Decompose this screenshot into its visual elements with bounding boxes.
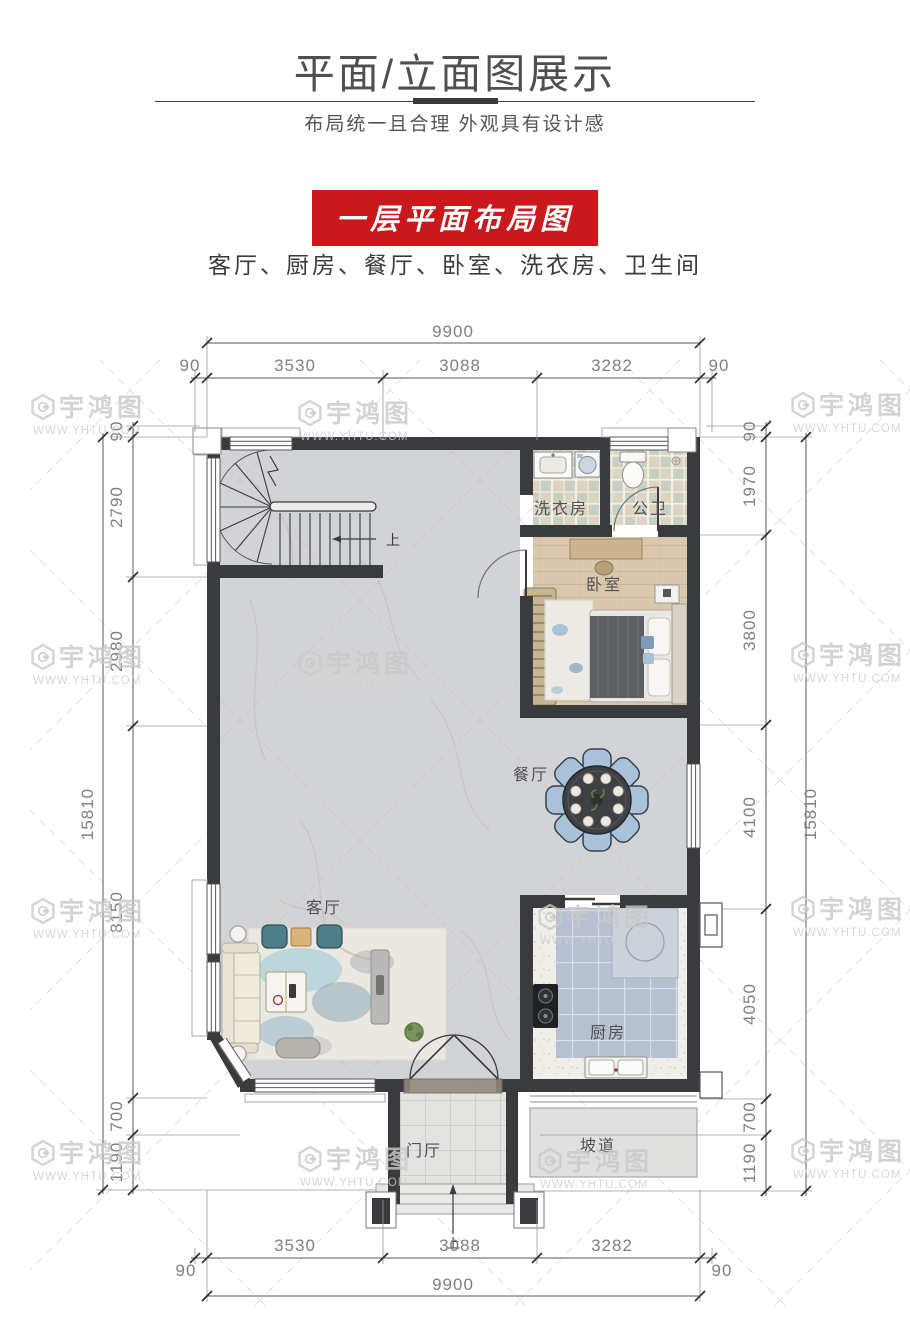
watermark: 宇鸿图WWW.YHTU.COM xyxy=(33,393,146,437)
accent-cushion xyxy=(643,653,654,664)
svg-text:WWW.YHTU.COM: WWW.YHTU.COM xyxy=(793,673,901,685)
svg-text:宇鸿图: 宇鸿图 xyxy=(819,895,906,924)
dim-top-3088: 3088 xyxy=(439,356,481,375)
dim-bottom-90r: 90 xyxy=(712,1261,733,1280)
dim-top-overall: 9900 xyxy=(432,322,474,341)
watermark: 宇鸿图WWW.YHTU.COM xyxy=(300,649,413,693)
svg-text:宇鸿图: 宇鸿图 xyxy=(819,391,906,420)
svg-text:宇鸿图: 宇鸿图 xyxy=(819,641,906,670)
dim-right-90: 90 xyxy=(740,421,759,442)
accent-armchair xyxy=(262,925,287,948)
ottoman xyxy=(276,1038,320,1058)
watermark: 宇鸿图WWW.YHTU.COM xyxy=(33,897,146,941)
label-laundry: 洗衣房 xyxy=(534,500,588,518)
svg-text:WWW.YHTU.COM: WWW.YHTU.COM xyxy=(300,1177,408,1189)
dim-top-90l: 90 xyxy=(180,356,201,375)
dim-right-overall: 15810 xyxy=(801,788,820,840)
svg-text:宇鸿图: 宇鸿图 xyxy=(566,1147,653,1176)
floor-plan: 上 xyxy=(0,0,910,1336)
flue-box xyxy=(700,903,722,947)
svg-text:宇鸿图: 宇鸿图 xyxy=(326,649,413,678)
foyer-floor xyxy=(400,1092,506,1184)
desk-chair xyxy=(595,561,613,575)
dim-top-3282: 3282 xyxy=(591,356,633,375)
svg-text:宇鸿图: 宇鸿图 xyxy=(59,897,146,926)
svg-text:宇鸿图: 宇鸿图 xyxy=(326,399,413,428)
svg-text:WWW.YHTU.COM: WWW.YHTU.COM xyxy=(300,431,408,443)
dim-left-overall: 15810 xyxy=(78,788,97,840)
svg-text:WWW.YHTU.COM: WWW.YHTU.COM xyxy=(300,681,408,693)
dim-right-3800: 3800 xyxy=(740,609,759,651)
entry-mat xyxy=(404,1079,502,1093)
watermark: 宇鸿图WWW.YHTU.COM xyxy=(540,903,653,947)
watermark: 宇鸿图WWW.YHTU.COM xyxy=(33,1139,146,1183)
dim-bottom-overall: 9900 xyxy=(432,1275,474,1294)
watermark: 宇鸿图WWW.YHTU.COM xyxy=(300,399,413,443)
svg-text:宇鸿图: 宇鸿图 xyxy=(819,1137,906,1166)
accent-cushion xyxy=(641,636,654,649)
dim-bottom-90l: 90 xyxy=(176,1261,197,1280)
svg-text:WWW.YHTU.COM: WWW.YHTU.COM xyxy=(33,675,141,687)
svg-text:宇鸿图: 宇鸿图 xyxy=(59,393,146,422)
accent-armchair xyxy=(317,925,342,948)
svg-text:宇鸿图: 宇鸿图 xyxy=(566,903,653,932)
label-dining: 餐厅 xyxy=(513,766,549,784)
svg-text:WWW.YHTU.COM: WWW.YHTU.COM xyxy=(33,929,141,941)
desk xyxy=(570,539,642,559)
watermark: 宇鸿图WWW.YHTU.COM xyxy=(793,895,906,939)
tea-table xyxy=(291,928,311,946)
toilet xyxy=(620,452,646,462)
label-living: 客厅 xyxy=(306,899,342,917)
svg-text:WWW.YHTU.COM: WWW.YHTU.COM xyxy=(793,927,901,939)
dim-bottom-3282: 3282 xyxy=(591,1236,633,1255)
dim-right-1970: 1970 xyxy=(740,465,759,507)
watermark: 宇鸿图WWW.YHTU.COM xyxy=(793,641,906,685)
watermark: 宇鸿图WWW.YHTU.COM xyxy=(793,1137,906,1181)
bedroom-rug xyxy=(545,600,593,700)
dim-top-3530: 3530 xyxy=(274,356,316,375)
dim-left-2790: 2790 xyxy=(107,486,126,528)
watermark: 宇鸿图WWW.YHTU.COM xyxy=(33,643,146,687)
watermark: 宇鸿图WWW.YHTU.COM xyxy=(793,391,906,435)
dim-right-4100: 4100 xyxy=(740,796,759,838)
svg-text:WWW.YHTU.COM: WWW.YHTU.COM xyxy=(540,1179,648,1191)
dim-bottom-3088: 3088 xyxy=(439,1236,481,1255)
living-room-furniture xyxy=(222,925,446,1062)
dim-right-1190: 1190 xyxy=(740,1143,759,1184)
page: { "header": { "title": "平面/立面图展示", "subt… xyxy=(0,0,910,1336)
watermark: 宇鸿图WWW.YHTU.COM xyxy=(300,1145,413,1189)
dim-top-90r: 90 xyxy=(709,356,730,375)
svg-text:WWW.YHTU.COM: WWW.YHTU.COM xyxy=(793,423,901,435)
svg-text:宇鸿图: 宇鸿图 xyxy=(59,643,146,672)
laundry-fixtures xyxy=(534,452,600,478)
svg-text:WWW.YHTU.COM: WWW.YHTU.COM xyxy=(793,1169,901,1181)
label-kitchen: 厨房 xyxy=(590,1024,626,1042)
label-bath: 公卫 xyxy=(632,501,668,518)
plant xyxy=(405,1023,423,1041)
flue-box xyxy=(700,1072,722,1098)
svg-text:WWW.YHTU.COM: WWW.YHTU.COM xyxy=(540,935,648,947)
watermark: 宇鸿图WWW.YHTU.COM xyxy=(540,1147,653,1191)
dim-right-4050: 4050 xyxy=(740,983,759,1025)
svg-text:宇鸿图: 宇鸿图 xyxy=(59,1139,146,1168)
svg-text:WWW.YHTU.COM: WWW.YHTU.COM xyxy=(33,425,141,437)
pillow xyxy=(648,659,670,696)
headboard xyxy=(672,604,687,704)
dim-bottom-3530: 3530 xyxy=(274,1236,316,1255)
stairs-up-label: 上 xyxy=(386,532,400,548)
svg-text:WWW.YHTU.COM: WWW.YHTU.COM xyxy=(33,1171,141,1183)
dining-set xyxy=(546,749,648,851)
svg-text:宇鸿图: 宇鸿图 xyxy=(326,1145,413,1174)
dim-right-700: 700 xyxy=(740,1101,759,1132)
side-table xyxy=(230,926,246,942)
label-bedroom: 卧室 xyxy=(586,576,622,594)
dim-left-700: 700 xyxy=(107,1100,126,1131)
